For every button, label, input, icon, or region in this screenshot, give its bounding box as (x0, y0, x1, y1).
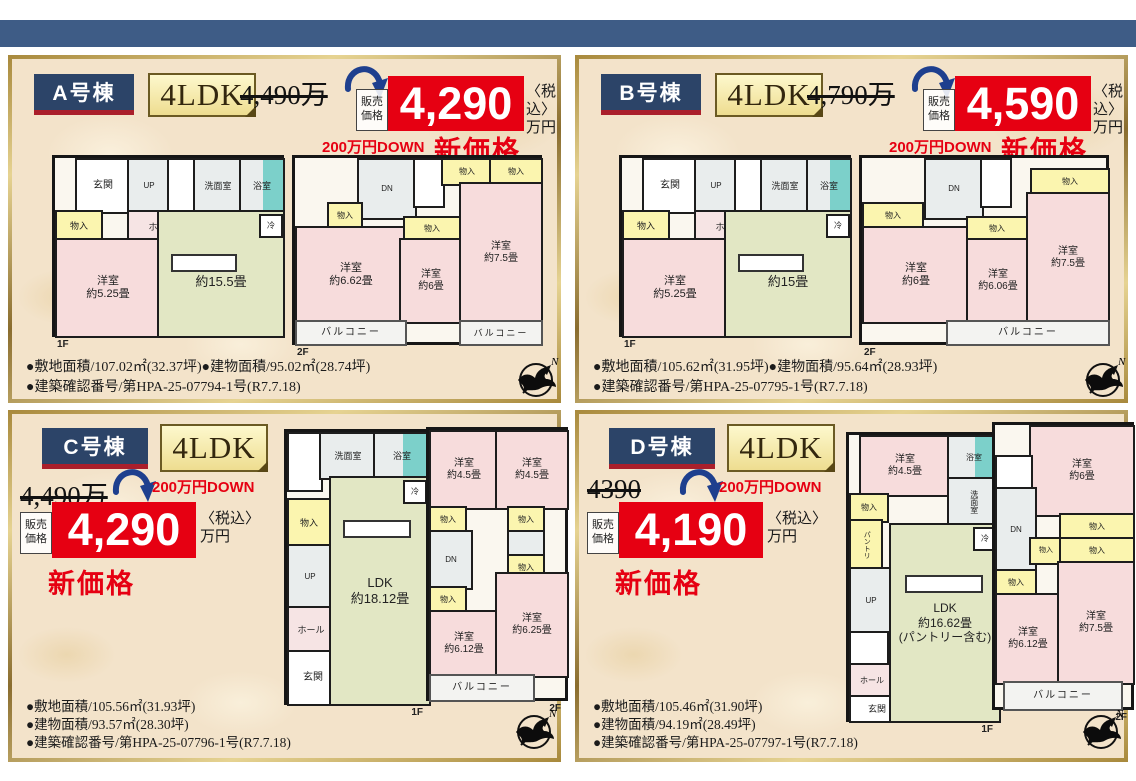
compass-icon: N (1077, 704, 1127, 754)
unit-panel-d: D号棟 4LDK 4390 販売 価格 4,190 〈税込〉 万円 200万円D… (575, 410, 1128, 762)
unit-name-badge: A号棟 (34, 74, 134, 115)
entrance: 玄関 (642, 158, 698, 214)
panel-background: A号棟 4LDK 4,490万 販売 価格 4,290 〈税込〉 万円 200万… (12, 59, 557, 399)
stairs: DN (924, 158, 984, 220)
bedroom: 洋室 約6.12畳 (995, 593, 1061, 685)
bathroom: 浴室 (239, 158, 285, 214)
detail-line: ●建築確認番号/第HPA-25-07794-1号(R7.7.18) (26, 378, 370, 398)
panel-background: D号棟 4LDK 4390 販売 価格 4,190 〈税込〉 万円 200万円D… (579, 414, 1124, 758)
ldk: LDK 約16.62畳 (パントリー含む) (889, 523, 1001, 723)
floor-plan-1f: 玄関UP洗面室浴室物入ホール洋室 約5.25畳LDK 約15.5畳冷1F (52, 155, 284, 337)
new-price-value: 4,190 (619, 502, 763, 558)
floor-plan-1f: 玄関UP洗面室浴室物入ホール洋室 約5.25畳LDK 約15畳冷1F (619, 155, 851, 337)
toilet (849, 631, 889, 667)
toilet (995, 455, 1033, 491)
balcony: バルコニー (946, 320, 1110, 346)
balcony: バルコニー (295, 320, 407, 346)
price-down-label: 200万円DOWN (322, 136, 425, 157)
property-details: ●敷地面積/105.62㎡(31.95坪)●建物面積/95.64㎡(28.93坪… (593, 358, 937, 399)
bedroom: 洋室 約6.62畳 (295, 226, 407, 324)
new-price-label: 新価格 (48, 562, 135, 601)
kitchen-counter (171, 254, 237, 272)
bedroom: 洋室 約7.5畳 (459, 182, 543, 324)
washroom: 洗面室 (319, 432, 377, 480)
bedroom: 洋室 約4.5畳 (859, 435, 951, 497)
layout-badge: 4LDK (160, 424, 268, 472)
svg-text:N: N (1117, 356, 1126, 368)
ldk: LDK 約18.12畳 (329, 476, 431, 706)
svg-text:N: N (548, 708, 557, 720)
kitchen-counter (738, 254, 804, 272)
detail-line: ●敷地面積/105.62㎡(31.95坪)●建物面積/95.64㎡(28.93坪… (593, 358, 937, 378)
layout-badge: 4LDK (727, 424, 835, 472)
price-prefix-label: 販売 価格 (20, 512, 52, 554)
stairs: DN (357, 158, 417, 220)
floor-plan-1f: 洗面室浴室物入UPホール玄関LDK 約18.12畳冷1F (284, 429, 430, 705)
bathroom: 浴室 (806, 158, 852, 214)
bedroom: 洋室 約5.25畳 (622, 238, 728, 338)
bathroom: 浴室 (373, 432, 431, 480)
washroom: 洗面室 (760, 158, 810, 214)
detail-line: ●敷地面積/105.46㎡(31.90坪) (593, 698, 858, 716)
floor-plan-2f: DN物入物入洋室 約6畳物入洋室 約6.06畳洋室 約7.5畳バルコニー2F (859, 155, 1109, 345)
kitchen-counter (343, 520, 411, 538)
old-price: 4,790万 (807, 73, 895, 112)
toilet (980, 158, 1012, 208)
stairs: UP (287, 544, 333, 610)
hall: ホール (287, 606, 335, 654)
detail-line: ●建物面積/94.19㎡(28.49坪) (593, 716, 858, 734)
property-details: ●敷地面積/105.56㎡(31.93坪) ●建物面積/93.57㎡(28.30… (26, 698, 291, 753)
price-prefix-label: 販売 価格 (587, 512, 619, 554)
entrance: 玄関 (75, 158, 131, 214)
closet: 物入 (287, 498, 331, 548)
unit-panel-b: B号棟 4LDK 4,790万 販売 価格 4,590 〈税込〉 万円 200万… (575, 55, 1128, 403)
new-price-label: 新価格 (615, 562, 702, 601)
detail-line: ●建築確認番号/第HPA-25-07797-1号(R7.7.18) (593, 734, 858, 752)
pantry: パントリ (849, 519, 883, 571)
bedroom: 洋室 約7.5畳 (1057, 561, 1135, 685)
fridge: 冷 (259, 214, 283, 238)
bedroom: 洋室 約6.06畳 (966, 238, 1030, 324)
tax-note: 〈税込〉 万円 (200, 510, 260, 546)
tax-note: 〈税込〉 万円 (767, 510, 827, 546)
price-prefix-label: 販売 価格 (923, 89, 955, 131)
bedroom: 洋室 約4.5畳 (495, 430, 569, 510)
panel-background: C号棟 4LDK 4,490万 販売 価格 4,290 〈税込〉 万円 200万… (12, 414, 557, 758)
unit-panel-a: A号棟 4LDK 4,490万 販売 価格 4,290 〈税込〉 万円 200万… (8, 55, 561, 403)
floor-label: 1F (624, 339, 636, 350)
stairs: UP (127, 158, 171, 214)
new-price-value: 4,290 (52, 502, 196, 558)
detail-line: ●敷地面積/107.02㎡(32.37坪)●建物面積/95.02㎡(28.74坪… (26, 358, 370, 378)
fridge: 冷 (403, 480, 427, 504)
balcony: バルコニー (459, 320, 543, 346)
bedroom: 洋室 約6畳 (862, 226, 970, 324)
property-details: ●敷地面積/105.46㎡(31.90坪) ●建物面積/94.19㎡(28.49… (593, 698, 858, 753)
price-down-label: 200万円DOWN (719, 476, 822, 497)
old-price: 4390 (587, 474, 641, 505)
svg-text:N: N (1115, 708, 1124, 720)
bedroom: 洋室 約6.12畳 (429, 610, 499, 678)
detail-line: ●建築確認番号/第HPA-25-07795-1号(R7.7.18) (593, 378, 937, 398)
compass-icon: N (510, 704, 560, 754)
price-down-label: 200万円DOWN (889, 136, 992, 157)
detail-line: ●敷地面積/105.56㎡(31.93坪) (26, 698, 291, 716)
bedroom: 洋室 約6畳 (1029, 425, 1135, 517)
detail-line: ●建物面積/93.57㎡(28.30坪) (26, 716, 291, 734)
kitchen-counter (905, 575, 983, 593)
floor-label: 1F (57, 339, 69, 350)
balcony: バルコニー (429, 674, 535, 702)
floor-label: 1F (411, 707, 423, 718)
bedroom: 洋室 約6畳 (399, 238, 463, 324)
stairs: UP (849, 567, 893, 635)
bedroom: 洋室 約6.25畳 (495, 572, 569, 678)
bedroom: 洋室 約4.5畳 (429, 430, 499, 510)
floor-label: 1F (981, 724, 993, 735)
tax-note: 〈税込〉 万円 (1093, 83, 1124, 137)
stairs: DN (429, 530, 473, 590)
compass-icon: N (512, 352, 562, 402)
price-prefix-label: 販売 価格 (356, 89, 388, 131)
new-price-value: 4,590 (955, 76, 1091, 131)
compass-icon: N (1079, 352, 1129, 402)
top-banner-bar (0, 20, 1136, 47)
fridge: 冷 (826, 214, 850, 238)
floor-plan-2f: 洋室 約6畳DN物入物入物入物入洋室 約6.12畳洋室 約7.5畳バルコニー2F (992, 422, 1134, 710)
floor-plan-2f: DN物入物入物入洋室 約6.62畳物入洋室 約6畳洋室 約7.5畳バルコニーバル… (292, 155, 542, 345)
washroom: 洗面室 (193, 158, 243, 214)
floor-plan-1f: 洋室 約4.5畳浴室洗面室物入パントリUPホール玄関LDK 約16.62畳 (パ… (846, 432, 1000, 722)
unit-panel-c: C号棟 4LDK 4,490万 販売 価格 4,290 〈税込〉 万円 200万… (8, 410, 561, 762)
svg-text:N: N (550, 356, 559, 368)
floor-label: 2F (297, 347, 309, 358)
bedroom: 洋室 約5.25畳 (55, 238, 161, 338)
bedroom: 洋室 約7.5畳 (1026, 192, 1110, 324)
floor-plan-2f: 洋室 約4.5畳洋室 約4.5畳物入物入DN物入物入洋室 約6.12畳洋室 約6… (426, 427, 568, 701)
unit-name-badge: B号棟 (601, 74, 701, 115)
floor-label: 2F (864, 347, 876, 358)
property-details: ●敷地面積/107.02㎡(32.37坪)●建物面積/95.02㎡(28.74坪… (26, 358, 370, 399)
new-price-value: 4,290 (388, 76, 524, 131)
tax-note: 〈税込〉 万円 (526, 83, 557, 137)
price-down-label: 200万円DOWN (152, 476, 255, 497)
stairs: UP (694, 158, 738, 214)
old-price: 4,490万 (240, 73, 328, 112)
toilet (287, 432, 323, 492)
detail-line: ●建築確認番号/第HPA-25-07796-1号(R7.7.18) (26, 734, 291, 752)
panel-background: B号棟 4LDK 4,790万 販売 価格 4,590 〈税込〉 万円 200万… (579, 59, 1124, 399)
